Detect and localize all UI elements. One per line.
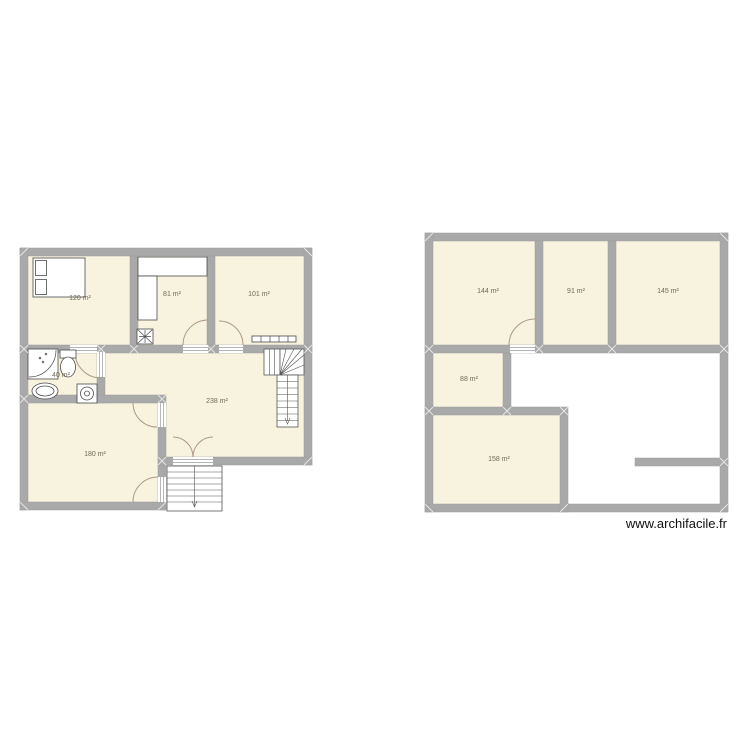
wall-segment [560,415,568,512]
wall-segment [20,248,28,510]
double-door-opening [173,457,213,465]
room-area-label: 238 m² [206,398,228,405]
wall-segment [425,233,433,512]
door-opening [158,477,166,502]
floor-plan-2: 144 m² 91 m² 145 m² 88 m² 158 m² [425,233,728,512]
wall-segment [425,407,568,415]
pillow-icon [36,261,47,276]
stove-burner-lines [138,330,152,343]
watermark: www.archifacile.fr [625,516,728,531]
entry-steps [167,466,222,511]
door-opening [510,345,535,353]
room-area-label: 40 m² [52,372,71,379]
wall-segment [425,233,728,241]
kitchen-counter [138,276,157,320]
wall-segment [503,353,511,407]
room-area-label: 180 m² [84,451,106,458]
wall-segment [20,248,312,256]
room-area-label: 81 m² [163,291,182,298]
kitchen-counter [138,257,207,276]
wall-segment [207,256,215,345]
room-area-label: 120 m² [69,295,91,302]
room-area-label: 91 m² [567,288,586,295]
wall-segment [425,345,728,353]
room-fill-room-top-right [215,256,304,345]
radiator-icon [252,336,296,342]
wall-segment [608,241,616,345]
wall-segment [720,233,728,512]
floor-plans-drawing: 120 m² 81 m² 101 m² 40 m² 238 m² 180 m² [0,0,750,750]
room-area-label: 145 m² [657,288,679,295]
washing-machine-door [85,391,90,396]
wall-segment [535,241,543,345]
sink-basin [36,386,54,396]
wall-segment [425,504,728,512]
stair-landing [264,349,280,375]
wall-openings [510,345,535,353]
room-area-label: 158 m² [488,456,510,463]
room-area-label: 88 m² [460,376,479,383]
door-opening [158,403,166,427]
door-opening [183,345,208,353]
room-area-label: 101 m² [248,291,270,298]
door-opening [219,345,243,353]
plan-canvas: 120 m² 81 m² 101 m² 40 m² 238 m² 180 m² [0,0,750,750]
door-opening [97,352,105,377]
room-area-label: 144 m² [477,288,499,295]
floor-plan-1: 120 m² 81 m² 101 m² 40 m² 238 m² 180 m² [20,248,312,511]
wall-segment [635,458,728,466]
wall-segment [304,248,312,465]
pillow-icon [36,280,47,295]
wall-segment [20,502,166,510]
